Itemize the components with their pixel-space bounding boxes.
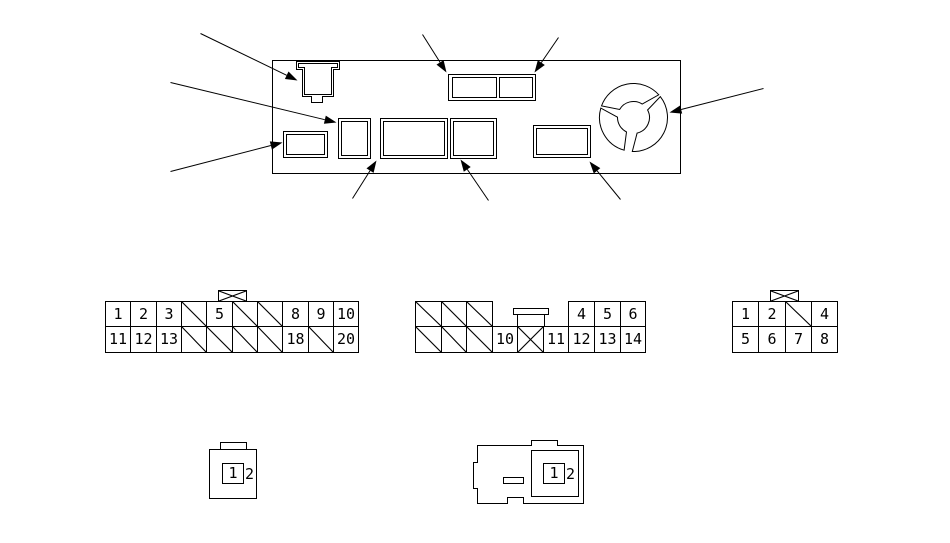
pin-cell: 4 (811, 301, 838, 327)
pin-cell: 5 (206, 301, 233, 327)
pin-cell: 20 (333, 326, 359, 353)
pin-cell: 10 (492, 326, 518, 353)
pin-cell: 2 (758, 301, 786, 327)
port-middle (450, 118, 497, 159)
blocked-pin-slash-mark (308, 326, 334, 353)
connector-d-pin-1-cell: 1 (222, 463, 244, 484)
pin-cell: 8 (282, 301, 309, 327)
pin-cell: 10 (333, 301, 359, 327)
pin-cell: 9 (308, 301, 334, 327)
blocked-pin-slash-mark (415, 301, 442, 327)
pin-cell: 6 (620, 301, 646, 327)
pin-cell: 8 (811, 326, 838, 353)
pin-cell: 1 (105, 301, 131, 327)
dual-port-left (452, 77, 497, 98)
connector-e-slot (504, 478, 524, 484)
pin-cell: 14 (620, 326, 646, 353)
pin-cell: 12 (130, 326, 157, 353)
blocked-pin-slash-mark (466, 326, 493, 353)
callout-arrow-line (597, 171, 620, 200)
pin-cell: 12 (568, 326, 595, 353)
pin-cell: 18 (282, 326, 309, 353)
pin-cell: 13 (594, 326, 621, 353)
pin-cell: 11 (543, 326, 569, 353)
callout-arrow-line (541, 38, 558, 63)
pin-cell: 4 (568, 301, 595, 327)
blocked-pin-slash-mark (466, 301, 493, 327)
blocked-pin-slash-mark (785, 301, 812, 327)
port-large (380, 118, 448, 159)
connector-d-pin-2-label: 2 (245, 464, 257, 484)
key-pin-cross-mark (517, 326, 544, 353)
callout-arrow-line (171, 146, 271, 172)
blocked-pin-slash-mark (441, 326, 467, 353)
blocked-pin-slash-mark (206, 326, 233, 353)
callout-arrow-line (467, 169, 488, 200)
port-right (533, 125, 591, 158)
port-vertical (338, 118, 371, 159)
blocked-pin-slash-mark (257, 326, 283, 353)
callout-arrow-line (681, 89, 763, 110)
connector-e-pin-2-label: 2 (566, 464, 578, 484)
callout-arrow-line (353, 171, 371, 199)
wiring-diagram-canvas: 12358910111213182045610111213141245678 1… (0, 0, 950, 543)
callout-arrow-line (423, 35, 441, 63)
port-small-left (283, 131, 328, 158)
pin-cell: 5 (732, 326, 759, 353)
blocked-pin-slash-mark (257, 301, 283, 327)
blocked-pin-slash-mark (232, 301, 258, 327)
pin-cell: 7 (785, 326, 812, 353)
pin-cell: 3 (156, 301, 182, 327)
blocked-pin-slash-mark (415, 326, 442, 353)
connector-e-pin-1-cell: 1 (543, 463, 565, 484)
pin-cell: 1 (732, 301, 759, 327)
dual-port-right (499, 77, 533, 98)
blocked-pin-slash-mark (441, 301, 467, 327)
blocked-pin-slash-mark (181, 326, 207, 353)
pin-cell: 5 (594, 301, 621, 327)
pin-cell: 11 (105, 326, 131, 353)
pin-cell: 2 (130, 301, 157, 327)
blocked-pin-slash-mark (232, 326, 258, 353)
pin-cell: 13 (156, 326, 182, 353)
pin-cell: 6 (758, 326, 786, 353)
blocked-pin-slash-mark (181, 301, 207, 327)
